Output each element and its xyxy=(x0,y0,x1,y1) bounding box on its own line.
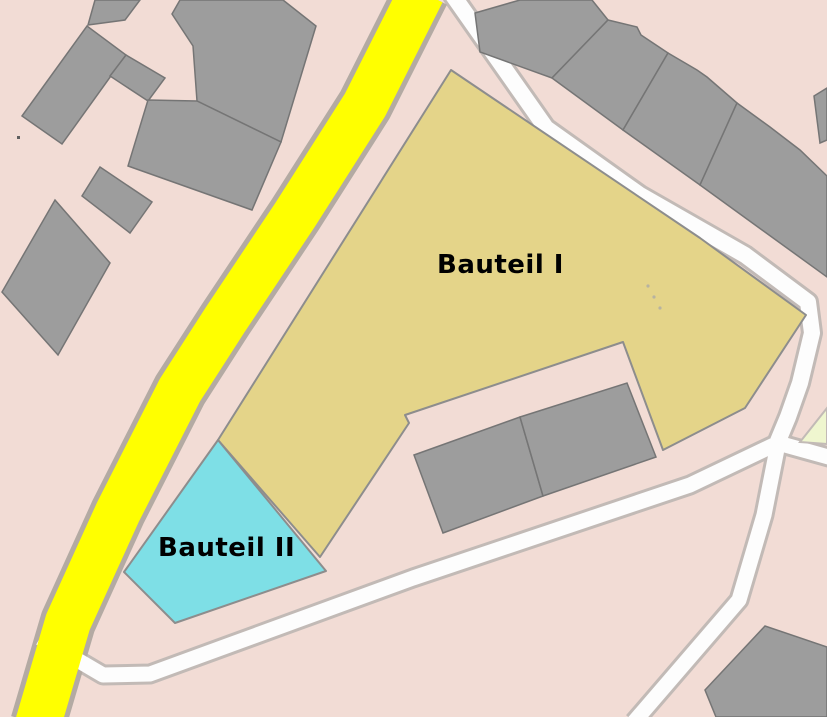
map-speck xyxy=(17,136,20,139)
bauteil-2-label: Bauteil II xyxy=(158,534,295,564)
bauteil-1-label: Bauteil I xyxy=(437,251,564,281)
map-canvas: Bauteil I Bauteil II xyxy=(0,0,827,717)
map-speck xyxy=(646,284,649,287)
map-speck xyxy=(652,295,655,298)
map-layers xyxy=(0,0,827,717)
map-speck xyxy=(658,306,661,309)
